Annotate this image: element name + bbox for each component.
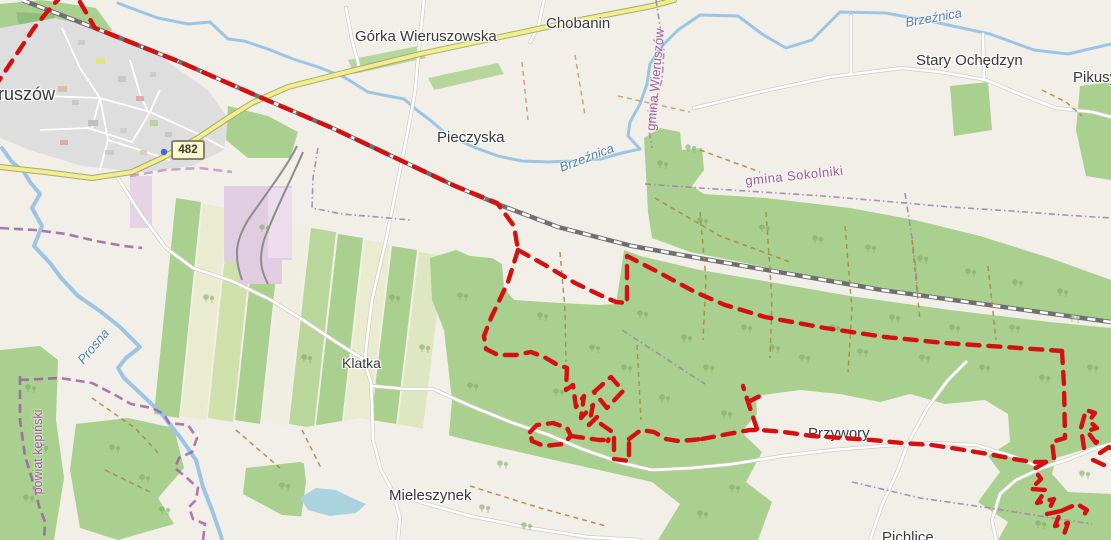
route-overlay xyxy=(0,0,1111,540)
map-canvas[interactable]: Wieruszów Górka Wieruszowska Chobanin Pi… xyxy=(0,0,1111,540)
gps-route xyxy=(0,0,1111,540)
